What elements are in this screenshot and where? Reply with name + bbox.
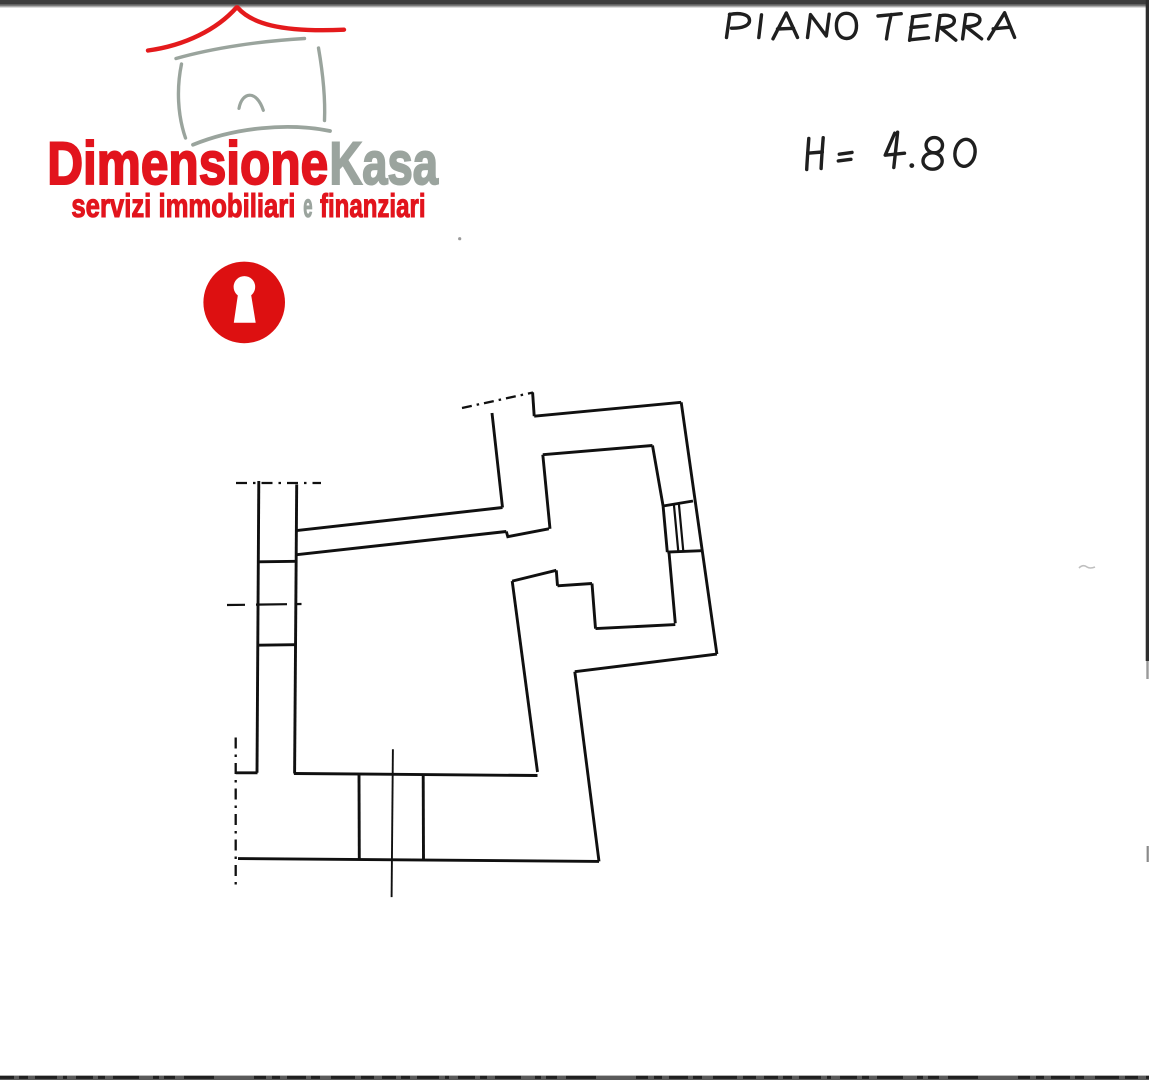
svg-text:Dimensione: Dimensione <box>47 129 328 197</box>
svg-text:Kasa: Kasa <box>330 129 440 197</box>
svg-text:servizi immobiliari: servizi immobiliari <box>71 188 295 225</box>
svg-text:e: e <box>303 188 312 225</box>
svg-text:finanziari: finanziari <box>320 188 426 225</box>
